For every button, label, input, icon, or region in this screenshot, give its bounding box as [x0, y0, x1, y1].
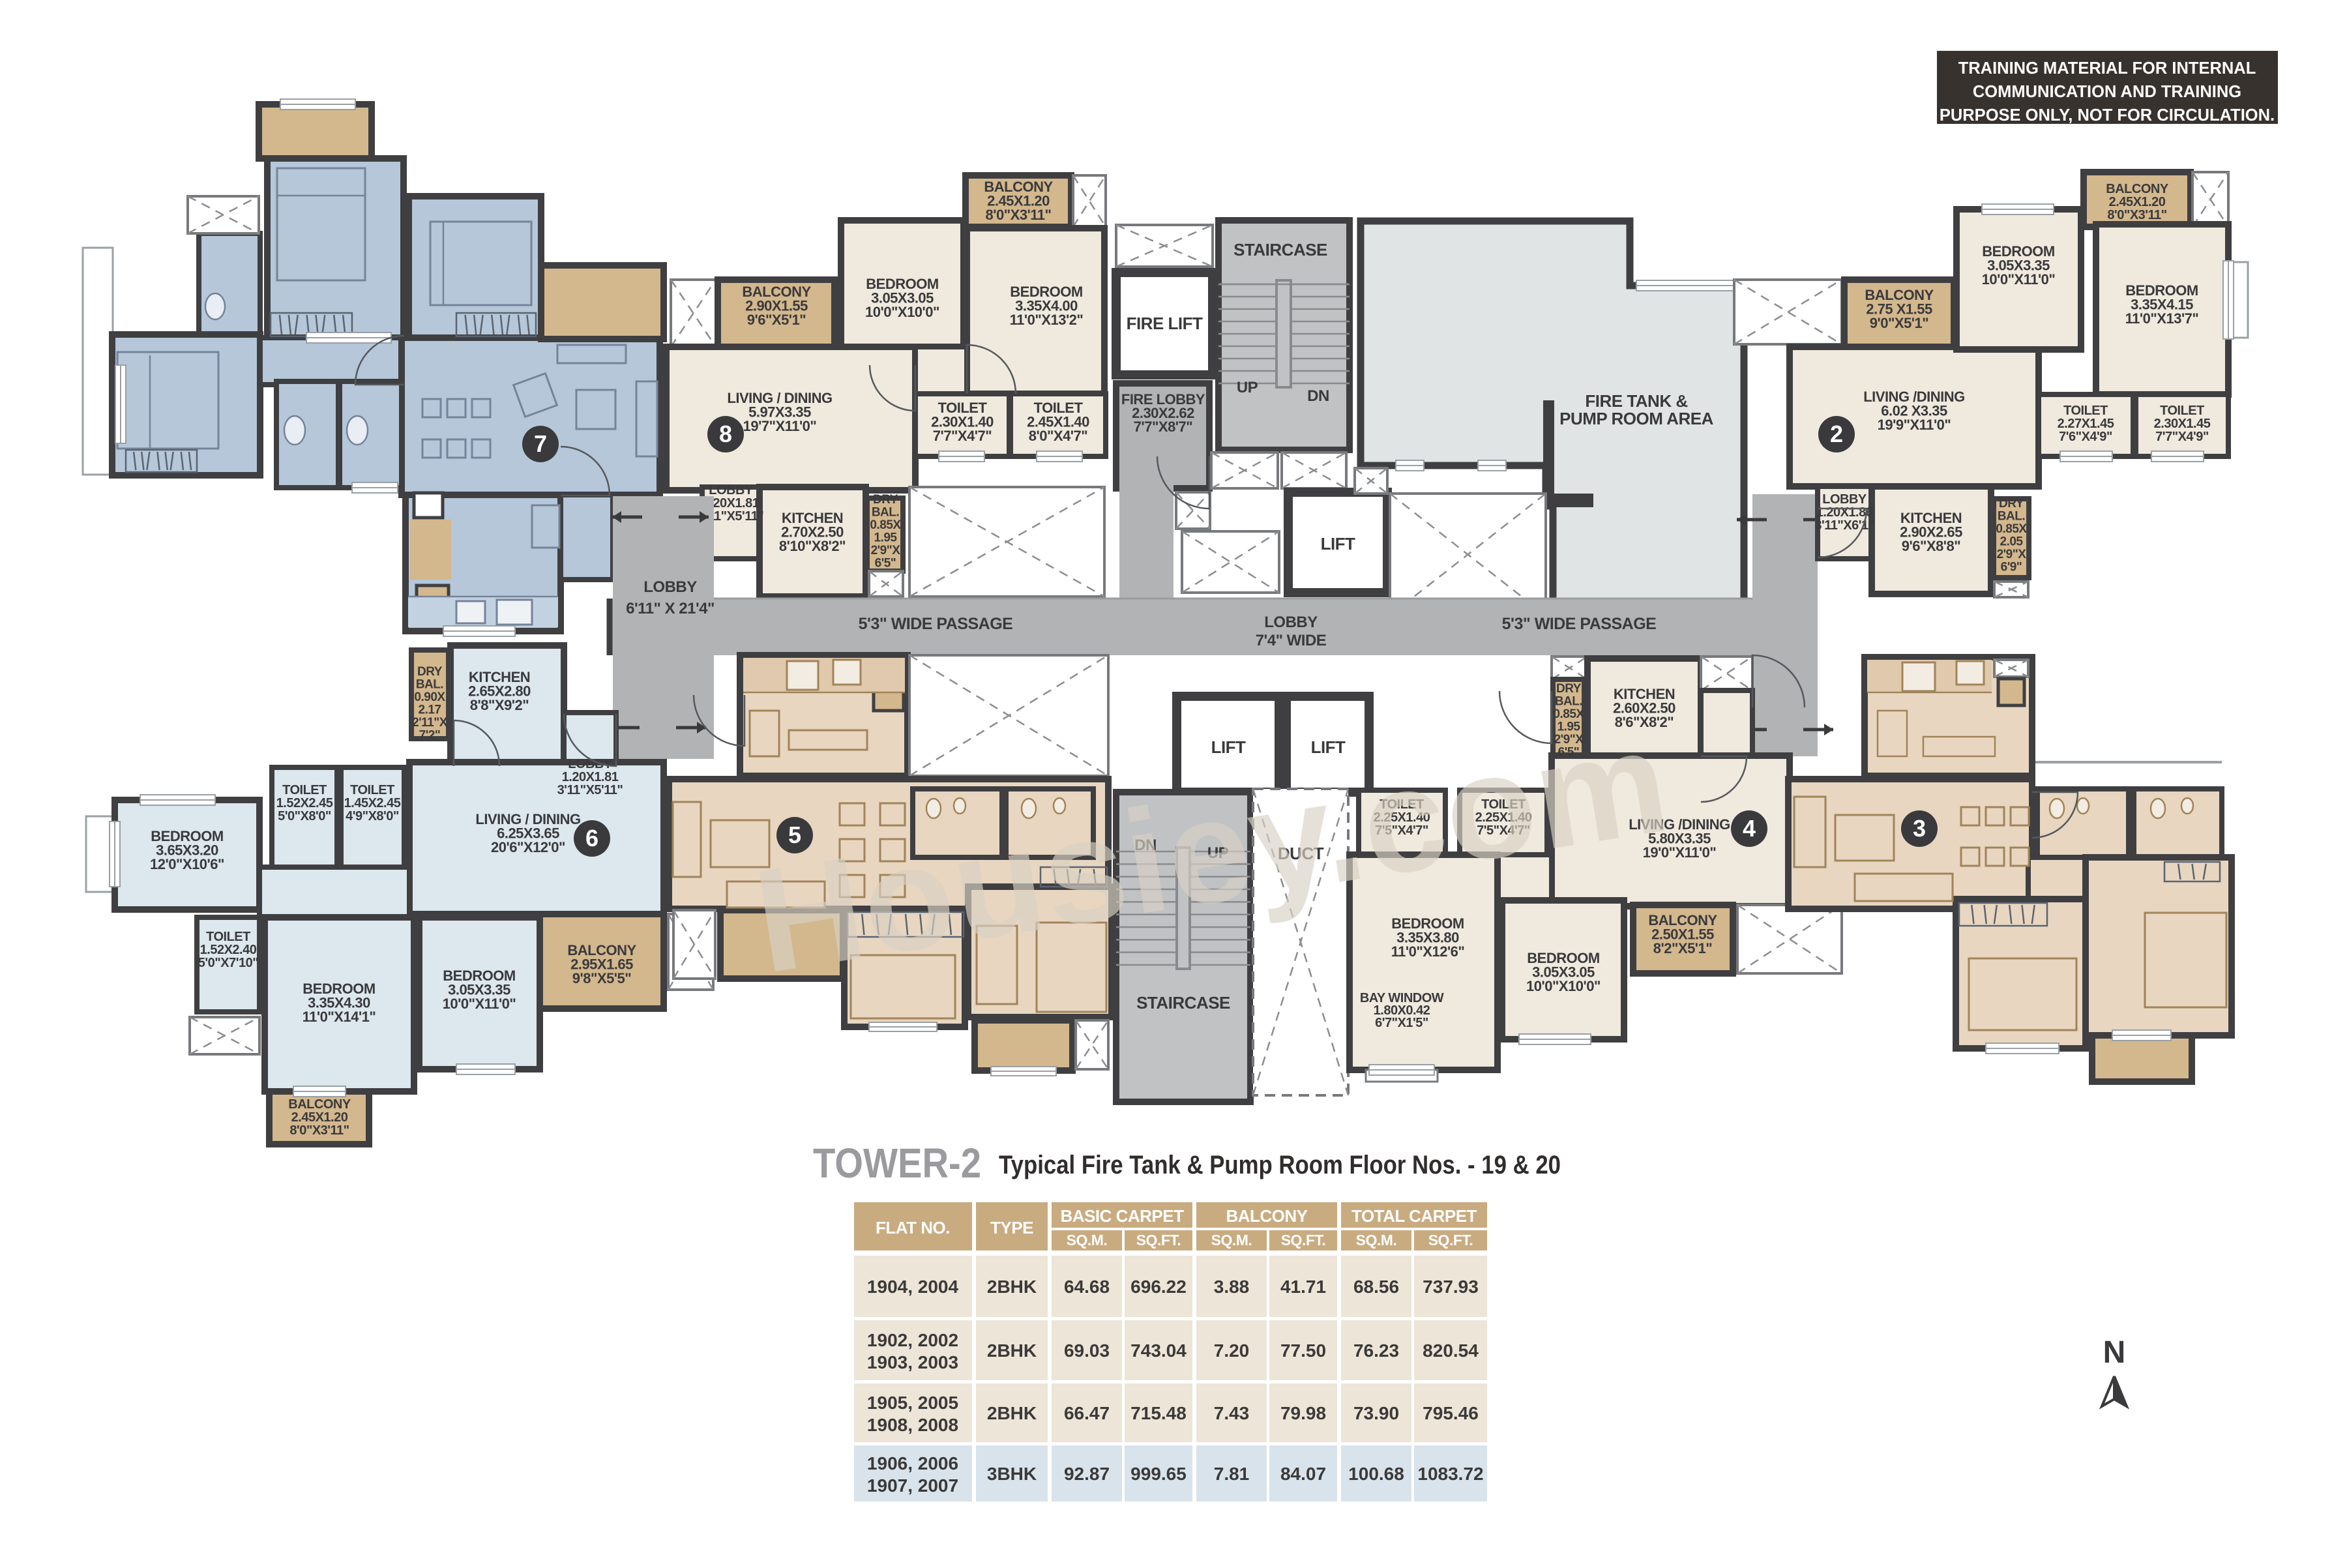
svg-text:100.68: 100.68 [1348, 1464, 1404, 1484]
svg-text:BEDROOM3.35X4.1511'0"X13'7": BEDROOM3.35X4.1511'0"X13'7" [2125, 282, 2199, 327]
svg-text:BALCONY2.95X1.659'8"X5'5": BALCONY2.95X1.659'8"X5'5" [567, 942, 636, 986]
svg-text:2BHK: 2BHK [987, 1340, 1037, 1361]
svg-text:84.07: 84.07 [1280, 1464, 1326, 1484]
svg-text:BEDROOM3.35X3.8011'0"X12'6": BEDROOM3.35X3.8011'0"X12'6" [1391, 915, 1465, 960]
svg-text:TOILET1.52X2.405'0"X7'10": TOILET1.52X2.405'0"X7'10" [198, 930, 258, 970]
svg-text:737.93: 737.93 [1423, 1277, 1479, 1297]
svg-text:SQ.FT.: SQ.FT. [1428, 1232, 1473, 1249]
svg-text:BALCONY2.90X1.559'6"X5'1": BALCONY2.90X1.559'6"X5'1" [742, 284, 811, 328]
svg-text:68.56: 68.56 [1353, 1277, 1399, 1297]
svg-text:DN: DN [1307, 387, 1329, 405]
svg-text:STAIRCASE: STAIRCASE [1233, 240, 1327, 259]
svg-text:1906, 2006: 1906, 2006 [867, 1453, 958, 1473]
svg-text:KITCHEN2.90X2.659'6"X8'8": KITCHEN2.90X2.659'6"X8'8" [1900, 510, 1962, 554]
svg-text:BEDROOM3.35X4.0011'0"X13'2": BEDROOM3.35X4.0011'0"X13'2" [1010, 284, 1084, 328]
svg-text:TOILET2.30X1.457'7"X4'9": TOILET2.30X1.457'7"X4'9" [2154, 404, 2211, 444]
svg-text:BALCONY2.45X1.208'0"X3'11": BALCONY2.45X1.208'0"X3'11" [288, 1097, 351, 1138]
svg-text:Typical Fire Tank & Pump Room: Typical Fire Tank & Pump Room Floor Nos.… [999, 1151, 1561, 1179]
svg-text:1905, 2005: 1905, 2005 [867, 1393, 958, 1413]
svg-text:LOBBY7'4" WIDE: LOBBY7'4" WIDE [1256, 614, 1327, 649]
svg-text:795.46: 795.46 [1423, 1403, 1479, 1423]
svg-text:TRAINING MATERIAL FOR INTERNAL: TRAINING MATERIAL FOR INTERNAL [1958, 59, 2256, 78]
svg-text:STAIRCASE: STAIRCASE [1136, 993, 1230, 1013]
svg-text:8: 8 [719, 421, 732, 447]
svg-text:TOTAL CARPET: TOTAL CARPET [1351, 1206, 1477, 1226]
svg-text:BEDROOM3.05X3.0510'0"X10'0": BEDROOM3.05X3.0510'0"X10'0" [865, 276, 939, 320]
svg-text:SQ.M.: SQ.M. [1211, 1232, 1252, 1249]
svg-text:LOBBY1.20X1.863'11"X6'1": LOBBY1.20X1.863'11"X6'1" [1814, 492, 1874, 533]
svg-text:696.22: 696.22 [1130, 1277, 1187, 1297]
svg-text:3BHK: 3BHK [987, 1464, 1037, 1484]
svg-text:FIRE LIFT: FIRE LIFT [1127, 314, 1203, 333]
svg-text:3.88: 3.88 [1214, 1277, 1250, 1297]
svg-text:BEDROOM3.65X3.2012'0"X10'6": BEDROOM3.65X3.2012'0"X10'6" [150, 828, 224, 872]
svg-text:7: 7 [534, 430, 547, 457]
svg-text:4: 4 [1743, 815, 1756, 842]
svg-text:743.04: 743.04 [1130, 1340, 1187, 1361]
svg-text:1908, 2008: 1908, 2008 [867, 1415, 958, 1435]
svg-text:BEDROOM3.05X3.0510'0"X10'0": BEDROOM3.05X3.0510'0"X10'0" [1526, 950, 1601, 994]
svg-text:SQ.FT.: SQ.FT. [1281, 1232, 1326, 1249]
svg-text:7.81: 7.81 [1214, 1464, 1250, 1484]
svg-text:1083.72: 1083.72 [1417, 1464, 1483, 1484]
svg-text:1907, 2007: 1907, 2007 [867, 1475, 958, 1496]
svg-text:715.48: 715.48 [1130, 1403, 1187, 1423]
svg-text:BALCONY: BALCONY [1226, 1206, 1307, 1226]
svg-text:TOILET2.27X1.457'6"X4'9": TOILET2.27X1.457'6"X4'9" [2058, 404, 2114, 444]
svg-text:SQ.M.: SQ.M. [1067, 1232, 1108, 1249]
svg-text:5'3" WIDE PASSAGE: 5'3" WIDE PASSAGE [1502, 615, 1657, 633]
svg-text:2BHK: 2BHK [987, 1403, 1037, 1423]
svg-text:TOILET2.45X1.408'0"X4'7": TOILET2.45X1.408'0"X4'7" [1027, 400, 1089, 444]
svg-text:64.68: 64.68 [1064, 1277, 1110, 1297]
svg-text:FLAT NO.: FLAT NO. [876, 1218, 950, 1237]
svg-text:PURPOSE ONLY, NOT FOR CIRCULAT: PURPOSE ONLY, NOT FOR CIRCULATION. [1940, 106, 2275, 125]
svg-text:999.65: 999.65 [1130, 1464, 1187, 1484]
svg-text:SQ.FT.: SQ.FT. [1136, 1232, 1181, 1249]
svg-text:1903, 2003: 1903, 2003 [867, 1352, 958, 1372]
svg-text:92.87: 92.87 [1064, 1464, 1110, 1484]
svg-text:41.71: 41.71 [1280, 1277, 1326, 1297]
svg-text:TOILET2.30X1.407'7"X4'7": TOILET2.30X1.407'7"X4'7" [931, 400, 994, 444]
svg-text:77.50: 77.50 [1280, 1340, 1326, 1361]
svg-text:LIFT: LIFT [1321, 534, 1355, 554]
svg-text:BEDROOM3.35X4.3011'0"X14'1": BEDROOM3.35X4.3011'0"X14'1" [303, 981, 376, 1025]
svg-text:2BHK: 2BHK [987, 1277, 1037, 1297]
svg-text:76.23: 76.23 [1353, 1340, 1399, 1361]
svg-text:73.90: 73.90 [1353, 1403, 1399, 1423]
svg-text:6: 6 [585, 825, 598, 851]
svg-text:TOWER-2: TOWER-2 [813, 1140, 981, 1187]
svg-text:BALCONY2.75 X1.559'0"X5'1": BALCONY2.75 X1.559'0"X5'1" [1865, 287, 1934, 331]
svg-text:BALCONY2.50X1.558'2"X5'1": BALCONY2.50X1.558'2"X5'1" [1648, 912, 1717, 956]
svg-text:N: N [2103, 1335, 2126, 1370]
svg-text:SQ.M.: SQ.M. [1356, 1232, 1397, 1249]
svg-text:1904, 2004: 1904, 2004 [867, 1277, 959, 1297]
svg-text:BALCONY2.45X1.208'0"X3'11": BALCONY2.45X1.208'0"X3'11" [2106, 182, 2169, 222]
svg-text:UP: UP [1237, 379, 1258, 396]
svg-text:7.43: 7.43 [1214, 1403, 1250, 1423]
svg-text:69.03: 69.03 [1064, 1340, 1110, 1361]
svg-text:820.54: 820.54 [1423, 1340, 1479, 1361]
svg-text:TOILET1.45X2.454'9"X8'0": TOILET1.45X2.454'9"X8'0" [344, 783, 401, 823]
svg-text:79.98: 79.98 [1280, 1403, 1326, 1423]
svg-text:3: 3 [1913, 815, 1926, 842]
svg-text:5'3" WIDE PASSAGE: 5'3" WIDE PASSAGE [859, 615, 1013, 633]
svg-text:LIFT: LIFT [1211, 737, 1246, 757]
svg-text:TYPE: TYPE [990, 1218, 1033, 1237]
svg-text:KITCHEN2.70X2.508'10"X8'2": KITCHEN2.70X2.508'10"X8'2" [779, 510, 846, 554]
svg-text:BASIC CARPET: BASIC CARPET [1060, 1206, 1184, 1226]
svg-text:TOILET1.52X2.455'0"X8'0": TOILET1.52X2.455'0"X8'0" [276, 783, 333, 823]
svg-text:BALCONY2.45X1.208'0"X3'11": BALCONY2.45X1.208'0"X3'11" [984, 179, 1053, 223]
svg-text:2: 2 [1830, 421, 1843, 447]
svg-text:BEDROOM3.05X3.3510'0"X11'0": BEDROOM3.05X3.3510'0"X11'0" [1982, 243, 2056, 288]
svg-text:7.20: 7.20 [1214, 1340, 1250, 1361]
svg-text:COMMUNICATION AND TRAINING: COMMUNICATION AND TRAINING [1973, 83, 2241, 101]
svg-text:1902, 2002: 1902, 2002 [867, 1330, 958, 1350]
svg-text:66.47: 66.47 [1064, 1403, 1110, 1423]
svg-text:BEDROOM3.05X3.3510'0"X11'0": BEDROOM3.05X3.3510'0"X11'0" [443, 968, 516, 1012]
svg-text:KITCHEN2.65X2.808'8"X9'2": KITCHEN2.65X2.808'8"X9'2" [468, 669, 531, 713]
